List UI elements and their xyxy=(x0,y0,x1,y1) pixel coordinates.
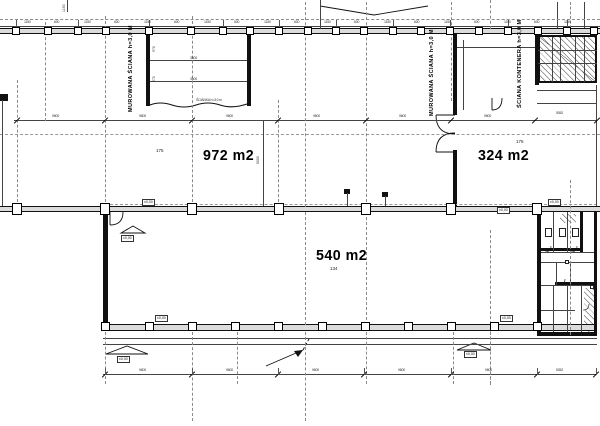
dim-label: 5052 xyxy=(556,111,563,115)
dim-extension xyxy=(223,20,224,27)
room-area-label: 972 m2 xyxy=(203,147,254,164)
grid-line xyxy=(453,332,454,384)
thin-line xyxy=(67,0,68,12)
grid-line xyxy=(105,16,106,207)
grid-line xyxy=(366,212,367,325)
room-note: 175 xyxy=(156,148,164,153)
thin-line xyxy=(581,285,582,332)
break-line xyxy=(150,103,247,107)
thin-line xyxy=(457,47,535,48)
interior-wall xyxy=(247,33,251,106)
dim-label: 1150 xyxy=(24,20,31,24)
column xyxy=(12,27,20,35)
dim-label: 1150 xyxy=(144,20,151,24)
dim-extension xyxy=(278,368,279,375)
column xyxy=(275,27,283,35)
dim-label: 1150 xyxy=(62,1,66,12)
dim-label: 9600 xyxy=(139,114,146,118)
thin-line xyxy=(538,50,597,51)
exterior-wall xyxy=(103,324,597,331)
dim-extension xyxy=(537,368,538,375)
door-swing-arc xyxy=(110,212,123,225)
column xyxy=(219,27,227,35)
dashed-line xyxy=(0,134,600,135)
column xyxy=(231,322,240,331)
level-marker: ±0,00 xyxy=(155,315,168,322)
plan-annotations xyxy=(0,0,600,426)
dim-label: 1150 xyxy=(324,20,331,24)
dim-label: 1150 xyxy=(564,20,571,24)
thin-line xyxy=(103,374,597,375)
column xyxy=(274,203,284,215)
wall-label: MUROWANA ŚCIANA h=3,0 M xyxy=(429,40,435,116)
column xyxy=(101,322,110,331)
dim-label: 600 xyxy=(174,20,179,24)
dim-extension xyxy=(596,368,597,375)
ramp-triangle xyxy=(121,226,145,233)
column xyxy=(590,27,598,35)
room-note: 176 xyxy=(516,139,524,144)
interior-wall xyxy=(453,150,457,207)
column xyxy=(490,322,499,331)
fixture xyxy=(572,228,579,237)
thin-line xyxy=(567,212,568,252)
dim-extension xyxy=(336,20,337,27)
grid-line xyxy=(490,332,491,384)
thin-line xyxy=(556,262,557,285)
break-line-note: ŚCIANKA h=3,0 m xyxy=(196,98,222,102)
dim-label: 1150 xyxy=(204,20,211,24)
dim-label: 600 xyxy=(354,20,359,24)
column xyxy=(246,27,254,35)
interior-wall xyxy=(537,211,541,335)
dim-extension xyxy=(78,20,79,27)
thin-line xyxy=(2,100,3,206)
level-marker: ±0,00 xyxy=(117,356,130,363)
dim-label: 9600 xyxy=(485,368,492,372)
dim-label: 600 xyxy=(294,20,299,24)
column xyxy=(563,27,571,35)
thin-line xyxy=(463,40,464,110)
column xyxy=(446,27,454,35)
room-area-label: 540 m2 xyxy=(316,247,367,264)
thin-line xyxy=(557,2,558,28)
grid-line xyxy=(570,180,571,335)
dim-label: 970 xyxy=(152,72,156,82)
dim-label: 1150 xyxy=(264,20,271,24)
grid-line xyxy=(305,332,306,421)
fixture xyxy=(559,228,566,237)
thin-line xyxy=(584,2,585,28)
column xyxy=(417,27,425,35)
wall-label: ŚCIANA KONTENERA h=3,0 M xyxy=(517,36,523,108)
level-marker: ±0,00 xyxy=(497,207,510,214)
dim-label: 9600 xyxy=(139,368,146,372)
column xyxy=(504,27,512,35)
dim-label: 5052 xyxy=(556,368,563,372)
wall-label: MUROWANA ŚCIANA h=3,0 M xyxy=(128,36,134,112)
dim-label: 5000 xyxy=(256,150,260,164)
column xyxy=(187,27,195,35)
interior-wall xyxy=(541,248,581,251)
level-marker: ±0,00 xyxy=(121,235,134,242)
grid-line xyxy=(305,212,306,325)
grid-line xyxy=(17,80,18,207)
column xyxy=(534,27,542,35)
column xyxy=(475,27,483,35)
thin-line xyxy=(347,193,348,206)
dim-extension xyxy=(393,20,394,27)
thin-line xyxy=(541,252,594,253)
dim-label: 600 xyxy=(414,20,419,24)
column xyxy=(361,322,370,331)
thin-line xyxy=(103,338,597,339)
column xyxy=(318,322,327,331)
level-marker: ±0,00 xyxy=(548,199,561,206)
thin-line xyxy=(560,37,561,82)
column xyxy=(532,203,542,215)
level-marker: ±0,00 xyxy=(464,351,477,358)
dim-label: 970 xyxy=(152,42,156,52)
thin-line xyxy=(538,63,597,64)
column xyxy=(44,27,52,35)
thin-line xyxy=(103,344,597,345)
column xyxy=(74,27,82,35)
dim-label: 1150 xyxy=(84,20,91,24)
thin-line xyxy=(575,37,576,82)
thin-line xyxy=(320,0,321,29)
column xyxy=(188,322,197,331)
column xyxy=(332,27,340,35)
interior-wall xyxy=(453,33,457,115)
thin-line xyxy=(150,81,247,82)
canopy-line xyxy=(320,6,428,15)
grid-line xyxy=(45,22,46,121)
dim-label: 3600 xyxy=(190,56,197,60)
dim-label: 1150 xyxy=(504,20,511,24)
interior-wall xyxy=(146,33,150,106)
dim-extension xyxy=(105,368,106,375)
thin-line xyxy=(553,212,554,252)
dim-label: 9600 xyxy=(312,368,319,372)
dim-label: 9600 xyxy=(313,114,320,118)
column xyxy=(274,322,283,331)
floor-plan: 972 m2324 m2540 m2175176134MUROWANA ŚCIA… xyxy=(0,0,600,426)
fixture xyxy=(590,285,594,289)
dim-label: 600 xyxy=(114,20,119,24)
column xyxy=(360,27,368,35)
fixture xyxy=(545,228,552,237)
thin-line xyxy=(385,196,386,206)
column xyxy=(447,322,456,331)
dim-label: 600 xyxy=(474,20,479,24)
grid-line xyxy=(192,16,193,207)
column xyxy=(145,322,154,331)
dim-label: 600 xyxy=(234,20,239,24)
dim-label: 9600 xyxy=(398,368,405,372)
dim-label: 1150 xyxy=(384,20,391,24)
column xyxy=(533,322,542,331)
grid-line xyxy=(237,332,238,384)
interior-wall xyxy=(594,211,597,336)
dim-label: 9600 xyxy=(226,368,233,372)
dim-label: 9600 xyxy=(399,114,406,118)
dim-label: 600 xyxy=(54,20,59,24)
dashed-line xyxy=(110,204,597,205)
dim-extension xyxy=(279,20,280,27)
container-block xyxy=(538,35,597,83)
dim-label: 9600 xyxy=(484,114,491,118)
column xyxy=(100,203,110,215)
column xyxy=(12,203,22,215)
column xyxy=(187,203,197,215)
column xyxy=(102,27,110,35)
grid-line xyxy=(105,332,106,384)
thin-line xyxy=(150,60,247,61)
room-area-label: 324 m2 xyxy=(478,147,529,164)
thin-line xyxy=(584,37,585,82)
interior-wall xyxy=(580,212,583,252)
thin-line xyxy=(537,103,597,104)
level-marker: ±0,00 xyxy=(142,199,155,206)
dim-label: 9600 xyxy=(226,114,233,118)
column xyxy=(404,322,413,331)
dim-label: 9600 xyxy=(52,114,59,118)
grid-line xyxy=(366,332,367,384)
thin-line xyxy=(263,120,264,206)
grid-line xyxy=(278,100,279,207)
dim-extension xyxy=(451,368,452,375)
column xyxy=(304,27,312,35)
thin-line xyxy=(596,85,597,206)
thin-line xyxy=(567,285,568,332)
thin-line xyxy=(537,90,597,91)
dim-label: 600 xyxy=(534,20,539,24)
ramp-triangle xyxy=(106,346,148,354)
interior-wall xyxy=(103,211,108,325)
door-swing-arc xyxy=(492,98,502,110)
grid-line xyxy=(192,332,193,421)
interior-wall xyxy=(535,33,539,85)
interior-wall xyxy=(537,332,597,336)
column xyxy=(145,27,153,35)
thin-line xyxy=(552,37,553,82)
fixture xyxy=(565,260,569,264)
column xyxy=(389,27,397,35)
dim-extension xyxy=(364,368,365,375)
column xyxy=(446,203,456,215)
dim-extension xyxy=(16,20,17,27)
dim-label: 1150 xyxy=(444,20,451,24)
grid-line xyxy=(451,2,452,101)
dim-label: 3600 xyxy=(190,77,197,81)
exterior-wall xyxy=(0,206,600,212)
thin-line xyxy=(553,285,554,332)
hatch-patch xyxy=(560,214,576,223)
column xyxy=(361,203,371,215)
room-note: 134 xyxy=(330,266,338,271)
level-marker: ±0,00 xyxy=(500,315,513,322)
grid-line xyxy=(490,0,491,29)
dim-extension xyxy=(192,368,193,375)
